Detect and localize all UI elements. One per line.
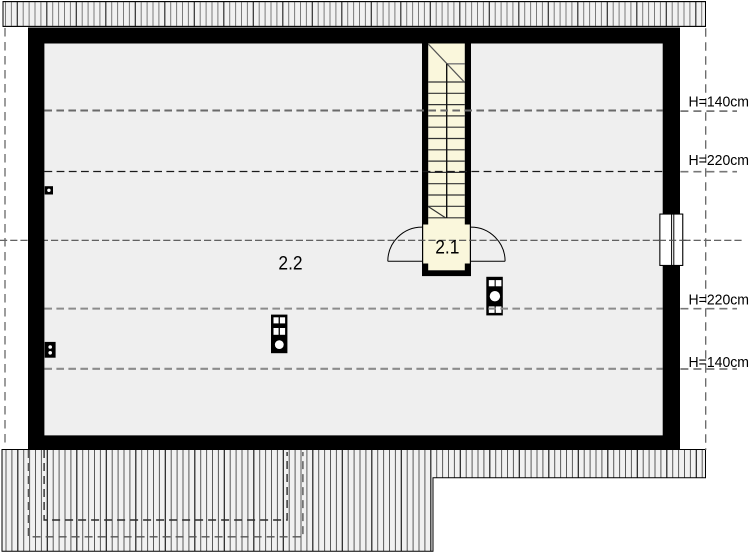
svg-text:2.1: 2.1 — [435, 236, 459, 258]
svg-text:2.2: 2.2 — [278, 253, 302, 275]
svg-text:H=220cm: H=220cm — [689, 153, 750, 169]
svg-text:H=140cm: H=140cm — [689, 355, 750, 371]
svg-text:H=140cm: H=140cm — [689, 94, 750, 110]
svg-text:H=220cm: H=220cm — [689, 293, 750, 309]
